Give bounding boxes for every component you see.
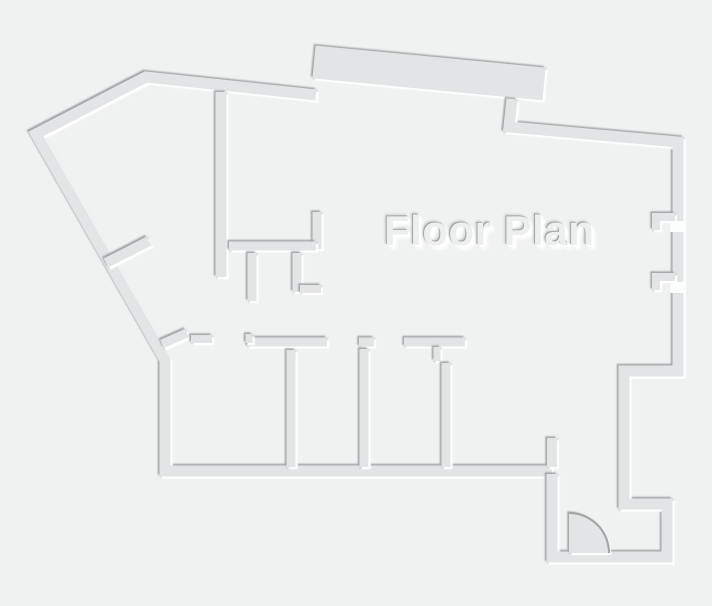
door-gap-upper <box>670 221 686 232</box>
floor-plan-canvas: Floor Plan <box>0 0 712 606</box>
outer-wall-east <box>509 99 678 557</box>
door-gap-lower <box>670 282 686 293</box>
west-diagonal-stub <box>106 241 149 263</box>
top-band-wall <box>314 62 544 84</box>
floor-plan-title: Floor Plan <box>384 210 594 252</box>
floor-plan-drawing <box>0 0 712 606</box>
corridor-jamb-diagonal <box>162 333 187 344</box>
